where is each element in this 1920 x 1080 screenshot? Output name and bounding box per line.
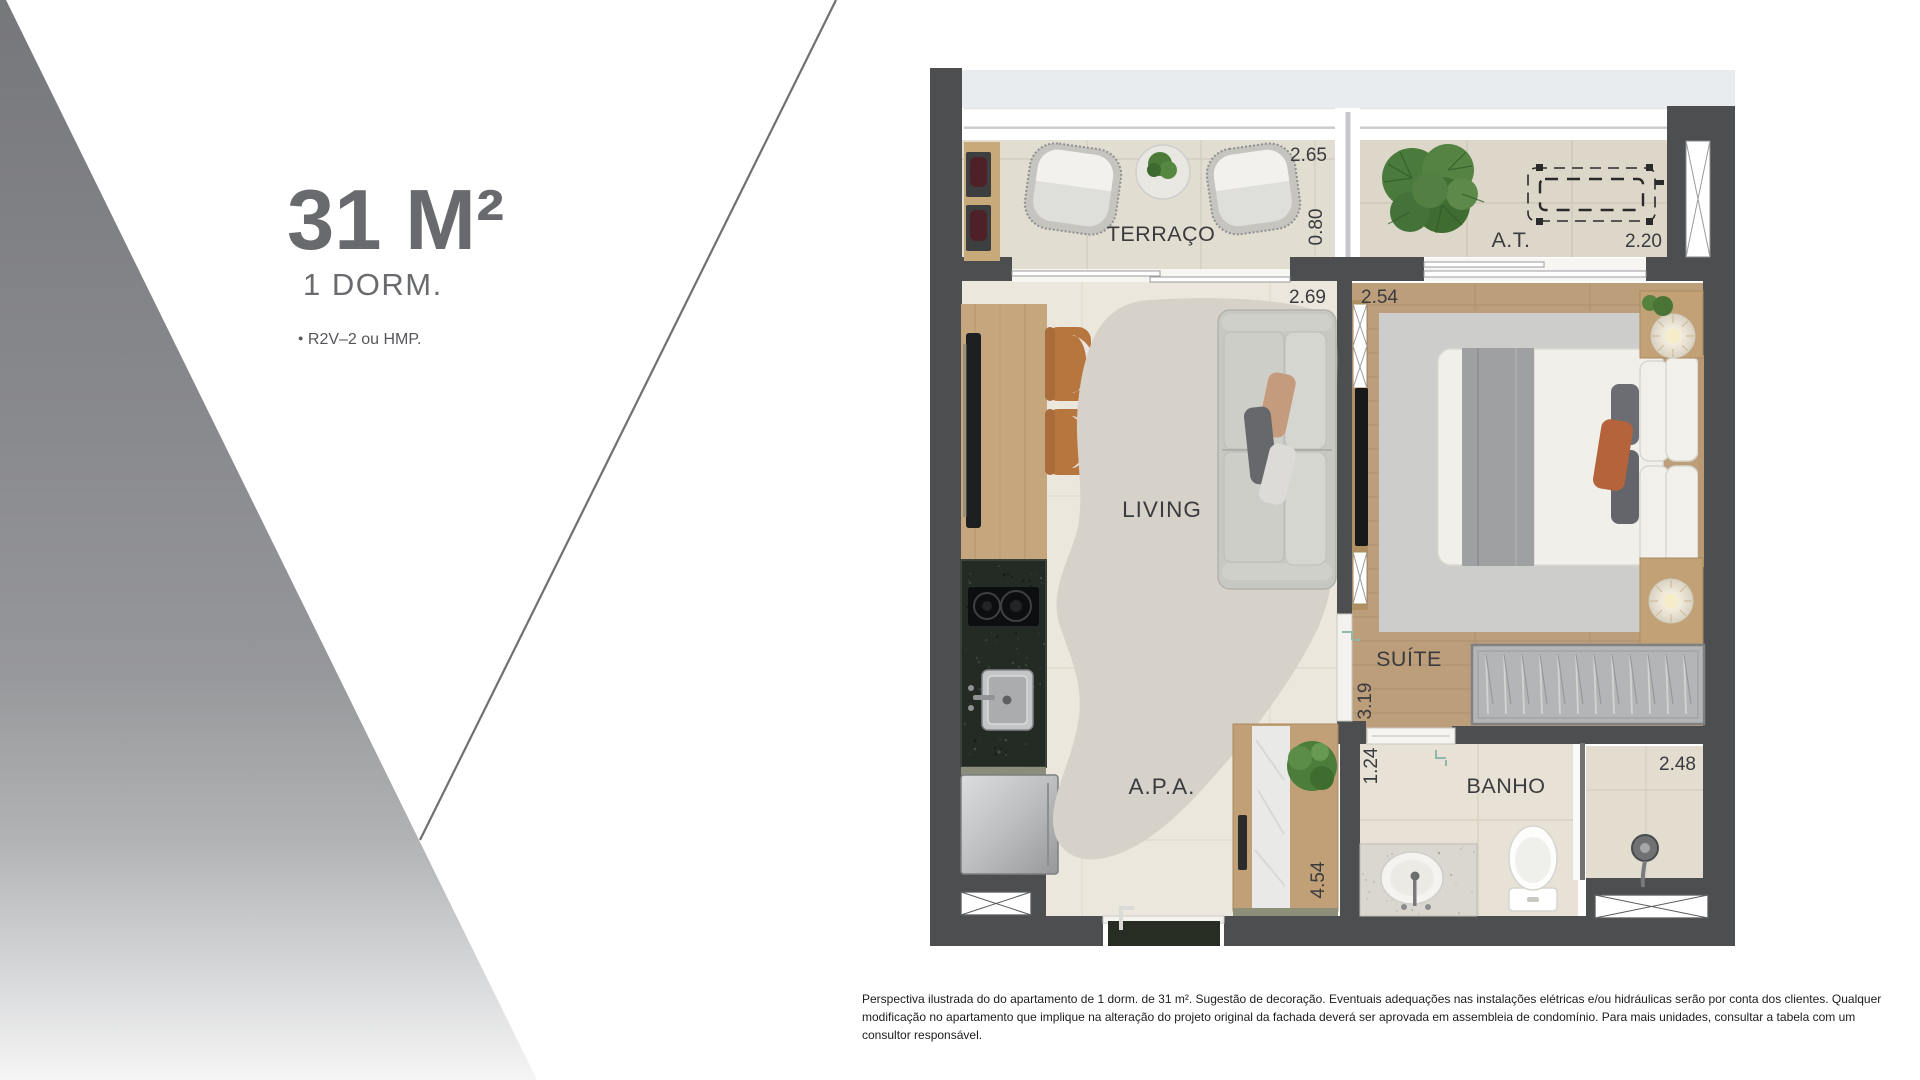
svg-text:2.20: 2.20 xyxy=(1625,231,1662,252)
svg-text:0.80: 0.80 xyxy=(1306,209,1327,246)
svg-text:SUÍTE: SUÍTE xyxy=(1376,646,1442,671)
svg-text:4.54: 4.54 xyxy=(1308,861,1329,898)
svg-text:A.P.A.: A.P.A. xyxy=(1129,774,1196,799)
svg-text:2.48: 2.48 xyxy=(1659,754,1696,775)
svg-text:TERRAÇO: TERRAÇO xyxy=(1107,222,1216,246)
svg-text:2.65: 2.65 xyxy=(1290,145,1327,166)
svg-text:LIVING: LIVING xyxy=(1122,497,1202,522)
svg-text:2.69: 2.69 xyxy=(1289,287,1326,308)
svg-text:BANHO: BANHO xyxy=(1467,774,1546,798)
svg-text:3.19: 3.19 xyxy=(1355,683,1376,720)
svg-text:1.24: 1.24 xyxy=(1361,747,1382,784)
svg-text:2.54: 2.54 xyxy=(1361,287,1398,308)
svg-text:A.T.: A.T. xyxy=(1491,228,1530,252)
